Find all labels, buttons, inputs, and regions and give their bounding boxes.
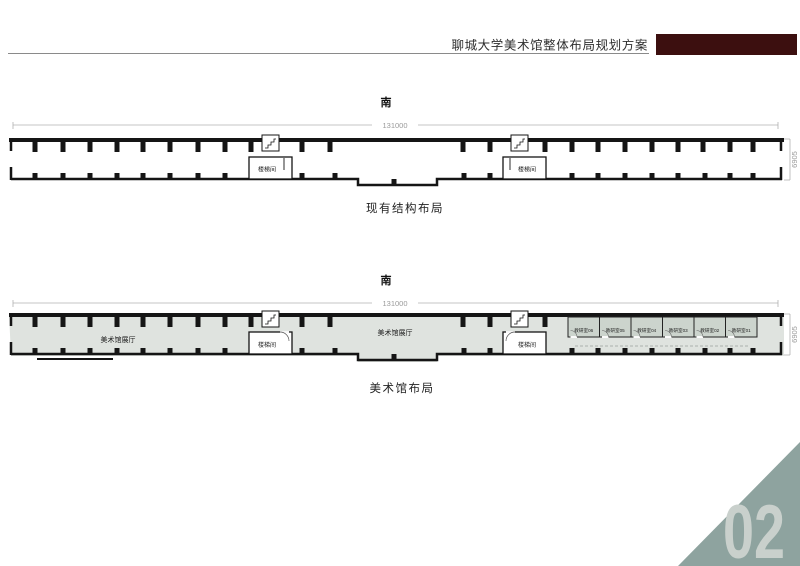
plan-caption: 现有结构布局 [366, 201, 444, 215]
column-mark [623, 142, 628, 152]
classrooms-row: 教研室06教研室05教研室04教研室03教研室02教研室01 [568, 317, 757, 337]
column-mark [751, 173, 756, 178]
hall-label: 美术馆展厅 [378, 328, 413, 337]
column-mark [488, 142, 493, 152]
page-footer: 02 [678, 442, 800, 566]
width-dimension-text: 131000 [382, 121, 407, 130]
height-dimension: 6905 [784, 139, 799, 180]
column-mark [223, 173, 228, 178]
column-mark [223, 348, 228, 353]
page-title: 聊城大学美术馆整体布局规划方案 [451, 38, 648, 53]
classroom-label: 教研室04 [637, 327, 656, 334]
column-mark [168, 317, 173, 327]
column-mark [728, 348, 733, 353]
page-canvas: 聊城大学美术馆整体布局规划方案 南 131000 [0, 0, 800, 566]
column-mark [328, 142, 333, 152]
column-mark [392, 354, 397, 359]
column-mark [570, 142, 575, 152]
column-mark [570, 348, 575, 353]
column-mark [249, 142, 254, 152]
classroom-box [726, 317, 758, 337]
column-mark [703, 348, 708, 353]
height-dimension: 6905 [784, 314, 799, 355]
column-mark [141, 348, 146, 353]
column-mark [33, 173, 38, 178]
column-mark [61, 173, 66, 178]
column-mark [623, 348, 628, 353]
stairwell-label: 楼梯间 [258, 341, 276, 349]
hall-label: 美术馆展厅 [101, 335, 136, 344]
column-mark [223, 142, 228, 152]
column-mark [300, 317, 305, 327]
stair-symbol-b [511, 311, 528, 327]
column-mark [33, 142, 38, 152]
page-number: 02 [723, 490, 785, 566]
height-dimension-text: 6905 [790, 151, 799, 168]
column-mark [333, 348, 338, 353]
column-mark [300, 348, 305, 353]
stair-symbol-a [262, 311, 279, 327]
column-mark [488, 348, 493, 353]
header: 聊城大学美术馆整体布局规划方案 [8, 34, 797, 55]
column-mark [676, 142, 681, 152]
column-mark [196, 142, 201, 152]
plan-existing: 南 131000 [9, 95, 799, 215]
column-mark [115, 142, 120, 152]
height-dimension-text: 6905 [790, 326, 799, 343]
column-mark [751, 142, 756, 152]
header-accent-block [656, 34, 797, 55]
column-mark [543, 142, 548, 152]
column-mark [141, 173, 146, 178]
classroom-label: 教研室06 [574, 327, 593, 334]
stair-symbol-b [511, 135, 528, 151]
column-mark [141, 142, 146, 152]
column-mark [115, 348, 120, 353]
column-mark [196, 317, 201, 327]
classroom-box [631, 317, 663, 337]
stair-symbol-a [262, 135, 279, 151]
column-mark [703, 173, 708, 178]
column-mark [623, 173, 628, 178]
stairwell-label: 楼梯间 [518, 166, 536, 174]
column-mark [328, 317, 333, 327]
column-mark [570, 173, 575, 178]
column-mark [676, 173, 681, 178]
column-mark [392, 179, 397, 184]
column-mark [650, 348, 655, 353]
column-mark [249, 317, 254, 327]
classroom-label: 教研室01 [732, 327, 751, 334]
stairwell-a: 楼梯间 [249, 332, 292, 354]
column-mark [333, 173, 338, 178]
classroom-box [600, 317, 632, 337]
column-mark [650, 142, 655, 152]
column-mark [488, 173, 493, 178]
column-mark [88, 317, 93, 327]
column-mark [488, 317, 493, 327]
presentation-page: 聊城大学美术馆整体布局规划方案 南 131000 [0, 0, 800, 566]
column-mark [196, 173, 201, 178]
column-mark [728, 142, 733, 152]
column-mark [61, 348, 66, 353]
plan-museum: 南 131000 美术馆展厅 美术馆展厅 教研室06教研室05教研室04教研室0… [9, 273, 799, 395]
stairwell-label: 楼梯间 [258, 166, 276, 174]
building-outline [9, 138, 784, 185]
column-mark [462, 348, 467, 353]
column-mark [33, 348, 38, 353]
column-mark [701, 142, 706, 152]
stairwell-b: 楼梯间 [503, 157, 546, 179]
orientation-label: 南 [381, 95, 392, 109]
column-mark [88, 173, 93, 178]
stairwell-b: 楼梯间 [503, 332, 546, 354]
classroom-label: 教研室05 [606, 327, 625, 334]
width-dimension-text: 131000 [382, 299, 407, 308]
orientation-label: 南 [381, 273, 392, 287]
column-mark [196, 348, 201, 353]
classroom-label: 教研室02 [700, 327, 719, 334]
column-mark [223, 317, 228, 327]
plan-caption: 美术馆布局 [370, 381, 435, 395]
column-mark [115, 317, 120, 327]
column-mark [728, 173, 733, 178]
column-mark [676, 348, 681, 353]
column-mark [61, 142, 66, 152]
column-mark [168, 348, 173, 353]
stairwell-a: 楼梯间 [249, 157, 292, 179]
column-mark [141, 317, 146, 327]
classroom-box [663, 317, 695, 337]
column-mark [596, 348, 601, 353]
column-mark [33, 317, 38, 327]
column-mark [300, 142, 305, 152]
column-mark [596, 142, 601, 152]
classroom-label: 教研室03 [669, 327, 688, 334]
column-mark [115, 173, 120, 178]
column-mark [61, 317, 66, 327]
column-mark [168, 173, 173, 178]
column-mark [88, 348, 93, 353]
column-mark [300, 173, 305, 178]
column-mark [461, 142, 466, 152]
width-dimension: 131000 [13, 121, 778, 130]
column-mark [461, 317, 466, 327]
column-mark [596, 173, 601, 178]
south-columns [33, 142, 756, 152]
classroom-box [694, 317, 726, 337]
column-mark [168, 142, 173, 152]
column-mark [751, 348, 756, 353]
stairwell-label: 楼梯间 [518, 341, 536, 349]
column-mark [650, 173, 655, 178]
column-mark [462, 173, 467, 178]
width-dimension: 131000 [13, 299, 778, 308]
column-mark [88, 142, 93, 152]
column-mark [543, 317, 548, 327]
classroom-box [568, 317, 600, 337]
